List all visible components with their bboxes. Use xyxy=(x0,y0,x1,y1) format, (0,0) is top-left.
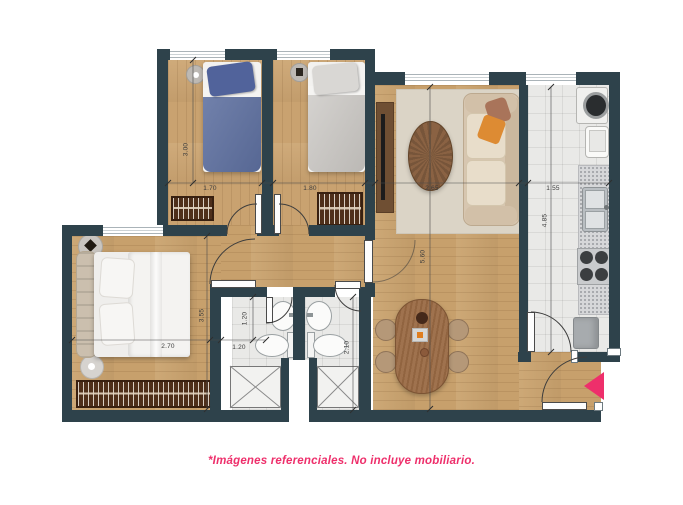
duct-shaft xyxy=(289,360,309,422)
door-leaf-hall xyxy=(364,240,373,283)
door-leaf-kitchen xyxy=(527,312,535,352)
door-leaf-bedroom2 xyxy=(274,194,281,234)
bed-pillow-grey xyxy=(312,62,360,96)
dim-master-width: 2.70 xyxy=(154,342,182,351)
wall xyxy=(293,287,305,366)
coffee-table xyxy=(408,121,453,191)
door-leaf-master xyxy=(211,280,256,288)
door-leaf-bedroom1 xyxy=(255,194,262,234)
table-cup xyxy=(420,348,429,357)
dim-bath1-depth: 1.20 xyxy=(241,305,250,333)
tv xyxy=(381,114,385,200)
kitchen-sink-basin xyxy=(585,190,605,209)
wardrobe-bedroom2 xyxy=(317,192,363,226)
window xyxy=(277,49,330,60)
bathroom2-shower xyxy=(317,366,359,408)
door-leaf-bathroom2 xyxy=(335,281,361,289)
bed-duvet-grey xyxy=(308,92,365,172)
stove-burner xyxy=(580,268,593,281)
door-jamb xyxy=(594,402,603,411)
door-leaf-entrance xyxy=(542,402,587,410)
bathroom2-faucet xyxy=(307,313,313,317)
dim-kitchen-width: 1.55 xyxy=(539,184,567,193)
fridge xyxy=(573,317,599,349)
dim-bedroom1-width: 1.70 xyxy=(196,184,224,193)
door-leaf-bathroom1 xyxy=(266,297,273,323)
wall xyxy=(62,225,103,236)
wall xyxy=(309,358,317,410)
door-jamb xyxy=(571,350,578,363)
wall xyxy=(609,74,620,352)
wall xyxy=(309,225,375,236)
wall xyxy=(221,287,267,297)
bed-pillow-blue xyxy=(206,61,256,97)
bed-pillow-white xyxy=(99,302,136,346)
lamp xyxy=(193,72,199,78)
dim-bath1-width: 1.20 xyxy=(225,343,253,352)
stove-burner xyxy=(580,251,593,264)
sofa-seat-cushion xyxy=(466,160,506,206)
washing-machine-door xyxy=(583,92,609,119)
bed-pillow-white xyxy=(99,257,136,299)
wall xyxy=(365,49,375,240)
window xyxy=(103,225,163,236)
caption-text: *Imágenes referenciales. No incluye mobi… xyxy=(0,455,683,467)
dim-living-width: 2.65 xyxy=(418,184,446,193)
stove-burner xyxy=(595,251,608,264)
dim-living-depth: 5.60 xyxy=(419,243,428,271)
stove-burner xyxy=(595,268,608,281)
kitchen-sink-basin xyxy=(585,211,605,229)
sofa-armrest-bottom xyxy=(465,206,517,225)
wall xyxy=(62,225,72,422)
wall xyxy=(359,287,371,410)
window xyxy=(170,49,225,60)
dim-bath2-depth: 2.10 xyxy=(343,334,352,362)
clock xyxy=(296,68,303,76)
door-jamb xyxy=(607,348,621,356)
dining-chair xyxy=(447,351,469,373)
dining-chair xyxy=(375,351,397,373)
wall xyxy=(62,410,289,422)
wall xyxy=(210,284,221,422)
dining-chair xyxy=(447,319,469,341)
entrance-arrow-icon xyxy=(584,372,604,400)
bed-duvet-blue xyxy=(203,94,261,172)
wall xyxy=(489,72,526,85)
wall xyxy=(518,352,531,362)
wall xyxy=(262,60,273,236)
dim-master-depth: 3.55 xyxy=(198,302,207,330)
table-tray-dish xyxy=(417,332,423,338)
wall xyxy=(168,225,227,236)
wall xyxy=(157,49,168,236)
dining-chair xyxy=(375,319,397,341)
tv-console xyxy=(376,102,394,213)
dim-bedroom1-depth: 3.00 xyxy=(182,136,191,164)
wall xyxy=(281,358,289,410)
laundry-tub-basin xyxy=(589,130,606,152)
lamp xyxy=(88,363,95,370)
wall xyxy=(309,410,601,422)
dim-bedroom2-width: 1.80 xyxy=(296,184,324,193)
wardrobe-bedroom1 xyxy=(171,196,214,221)
window xyxy=(405,72,489,85)
bathroom1-shower xyxy=(230,366,281,408)
table-plate xyxy=(416,312,428,324)
bathroom1-toilet-bowl xyxy=(255,334,289,357)
dim-kitchen-depth: 4.85 xyxy=(541,207,550,235)
floorplan-canvas: 3.00 1.70 1.80 2.65 1.55 5.60 4.85 3.55 … xyxy=(0,0,683,505)
window xyxy=(526,72,576,85)
wall xyxy=(375,72,405,85)
wardrobe-master xyxy=(76,380,220,408)
